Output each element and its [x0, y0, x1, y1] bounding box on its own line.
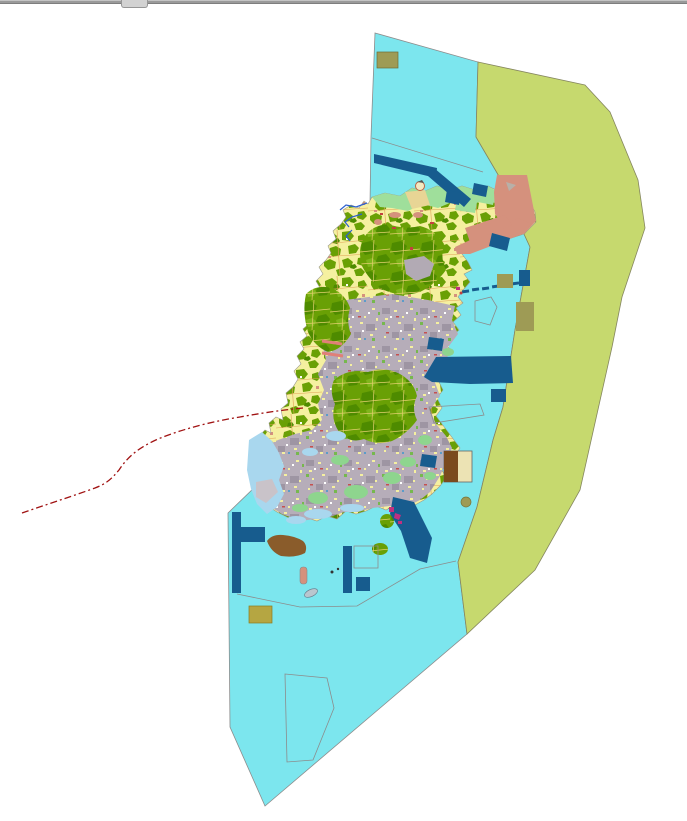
east-harbor-basin [424, 356, 513, 384]
brown-tan-compound [444, 451, 472, 482]
salmon-islet [300, 567, 307, 584]
west-pier-vertical [232, 512, 241, 593]
west-pier-arm [232, 527, 265, 542]
khaki-block-south [249, 606, 272, 623]
map-viewer-window [0, 0, 687, 821]
map-canvas[interactable] [0, 0, 687, 821]
